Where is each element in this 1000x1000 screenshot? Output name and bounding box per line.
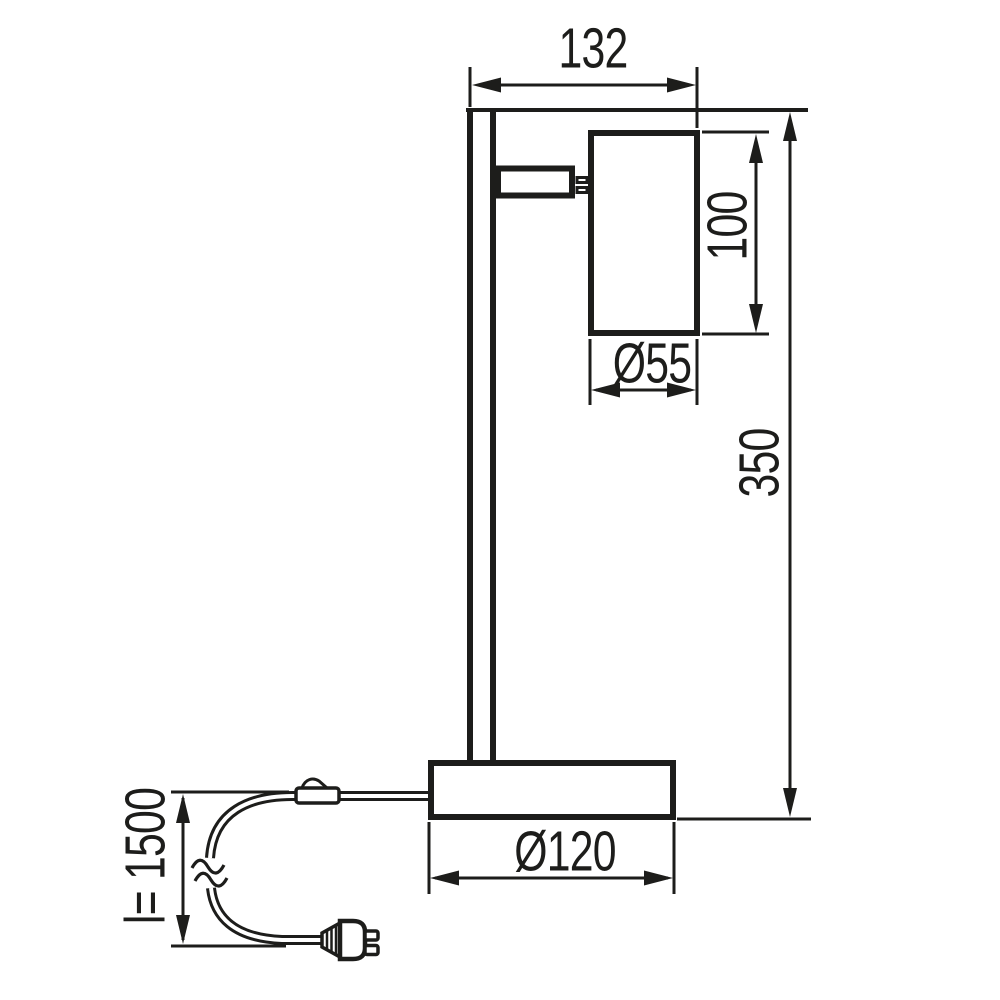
dim-label-shade-diameter: Ø55 (613, 336, 692, 393)
power-plug (322, 921, 378, 959)
power-cable (192, 796, 429, 940)
lamp-base (431, 763, 673, 817)
inline-switch (296, 779, 339, 803)
dim-label-shade-height: 100 (700, 191, 757, 260)
plug-body (340, 921, 365, 959)
dim-label-overall-width: 132 (558, 21, 627, 78)
cable-break-mark (192, 860, 224, 873)
lamp-arm (498, 169, 587, 196)
dim-label-base-diameter: Ø120 (514, 824, 616, 881)
lamp-shade (591, 133, 697, 333)
plug-prong (365, 946, 378, 955)
cable-break-mark (195, 873, 227, 886)
lamp-pole (470, 112, 493, 765)
dim-label-cable-length: l= 1500 (118, 788, 175, 924)
arm-joint (577, 188, 587, 193)
plug-prong (365, 931, 378, 940)
arm-joint (577, 178, 587, 183)
dim-label-lamp-height: 350 (732, 428, 789, 497)
lamp-technical-drawing-page: 132 100 Ø55 350 Ø120 l= 1500 (0, 0, 1000, 1000)
